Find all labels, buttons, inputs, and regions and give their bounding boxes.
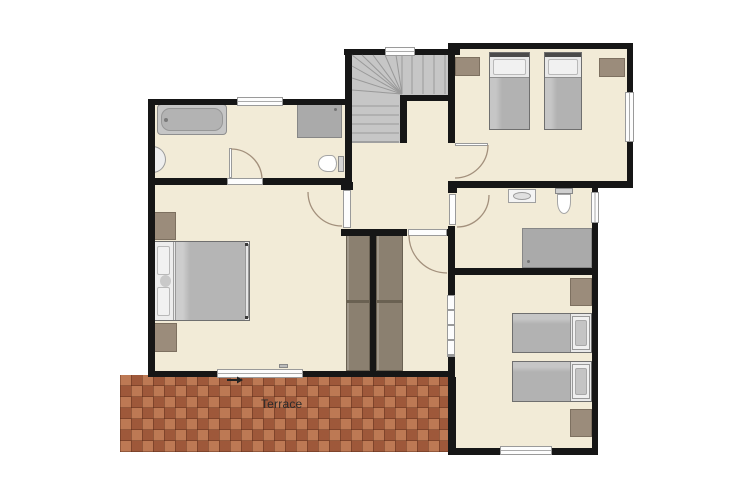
wall	[400, 95, 407, 143]
bed-headboard	[545, 53, 581, 57]
vanity-sink-icon	[508, 189, 536, 203]
nightstand-icon	[599, 58, 625, 77]
bathtub-basin	[161, 108, 223, 131]
window-icon	[385, 47, 415, 56]
pillow	[157, 246, 170, 275]
wall	[263, 178, 352, 185]
window-icon	[217, 369, 303, 378]
terrace: Terrace	[120, 375, 450, 452]
window-icon	[447, 295, 455, 357]
toilet-tank	[338, 156, 344, 172]
toilet-icon	[555, 188, 573, 215]
wall	[627, 43, 633, 92]
wall	[552, 448, 598, 455]
wall	[448, 43, 633, 49]
wall	[148, 99, 155, 377]
bed-sheet	[245, 244, 249, 318]
window-icon	[591, 192, 599, 223]
wall	[448, 277, 455, 295]
door-swing-icon	[343, 190, 351, 228]
nightstand-icon	[153, 212, 176, 240]
pillow	[157, 287, 170, 316]
floor-plan: Terrace	[0, 0, 755, 504]
wall	[370, 232, 376, 371]
shower-mat-icon	[522, 228, 592, 268]
bed-headboard	[490, 53, 529, 57]
single-bed-icon	[512, 361, 592, 402]
pillow	[493, 59, 526, 75]
bed-blanket	[175, 242, 245, 320]
wardrobe-icon	[376, 232, 403, 371]
single-bed-icon	[544, 52, 582, 130]
door-swing-icon	[227, 178, 263, 185]
nightstand-icon	[455, 57, 480, 76]
pillow	[548, 59, 578, 75]
window-icon	[500, 446, 552, 455]
wall	[448, 183, 457, 193]
nightstand-icon	[153, 323, 177, 352]
window-icon	[625, 92, 634, 142]
shower-drain	[334, 108, 337, 111]
bed-blanket	[513, 314, 571, 352]
wall	[448, 357, 455, 377]
bathtub-icon	[157, 104, 227, 135]
shower-drain	[527, 260, 530, 263]
toilet-icon	[318, 155, 344, 173]
bathtub-faucet	[164, 118, 168, 122]
staircase-lower-flight	[350, 99, 400, 143]
wall	[400, 95, 455, 101]
wall	[148, 178, 227, 185]
double-bed-icon	[153, 241, 250, 321]
door-swing-icon	[455, 143, 488, 146]
bed-corner	[245, 316, 248, 319]
door-patch	[448, 143, 457, 184]
nightstand-icon	[570, 409, 592, 437]
terrace-label: Terrace	[261, 397, 302, 411]
nightstand-icon	[570, 278, 592, 306]
wall	[448, 181, 633, 188]
single-bed-icon	[489, 52, 530, 130]
wall	[448, 268, 598, 275]
shower-mat-icon	[297, 104, 342, 138]
door-swing-icon	[449, 194, 456, 225]
headboard-knob	[160, 275, 171, 287]
wall	[592, 223, 598, 455]
pillow	[575, 368, 587, 395]
radiator-icon	[279, 364, 288, 368]
window-icon	[237, 97, 283, 106]
toilet-bowl	[557, 194, 571, 214]
wall	[448, 377, 456, 453]
staircase-icon	[350, 53, 452, 99]
door-swing-icon	[229, 148, 232, 178]
bed-corner	[245, 243, 248, 246]
wardrobe-icon	[346, 232, 370, 371]
bed-blanket	[513, 362, 571, 401]
door-swing-icon	[408, 229, 447, 236]
bed-blanket	[490, 77, 529, 129]
sink-basin	[513, 192, 531, 200]
wall	[448, 43, 455, 143]
single-bed-icon	[512, 313, 592, 353]
pillow	[575, 320, 587, 346]
wall	[345, 53, 352, 189]
toilet-bowl	[318, 155, 337, 172]
bed-blanket	[545, 77, 581, 129]
